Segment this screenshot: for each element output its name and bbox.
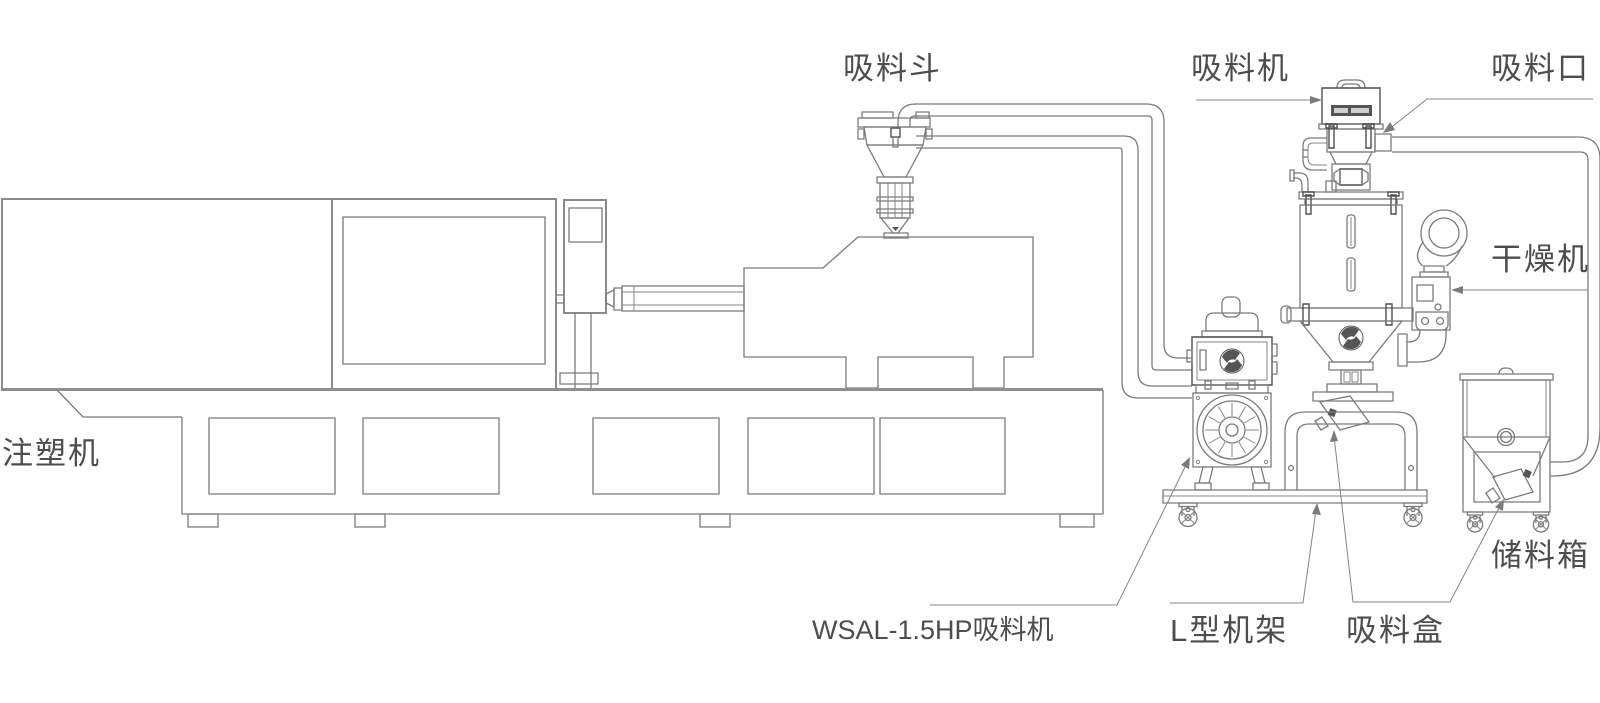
vacuum-pipes [898, 104, 1192, 398]
drying-hopper-drawing [1281, 80, 1413, 430]
suction-inlet-port [1375, 134, 1391, 151]
diagram-canvas: 吸料斗 吸料机 吸料口 干燥机 注塑机 WSAL-1.5HP吸料机 L型机架 吸… [0, 0, 1600, 703]
label-wsal-pump: WSAL-1.5HP吸料机 [812, 617, 1054, 644]
dryer-drawing [1398, 210, 1467, 366]
label-dryer: 干燥机 [1491, 244, 1590, 275]
label-suction-inlet: 吸料口 [1491, 53, 1590, 84]
label-injection-machine: 注塑机 [2, 438, 101, 469]
storage-box-drawing [1460, 368, 1553, 532]
label-l-frame: L型机架 [1170, 615, 1288, 646]
pump-unit-drawing [1187, 297, 1277, 490]
label-suction-hopper: 吸料斗 [843, 53, 942, 84]
material-pipe [1392, 137, 1600, 476]
label-vacuum-loader: 吸料机 [1191, 53, 1290, 84]
label-suction-box: 吸料盒 [1346, 615, 1445, 646]
system-line-drawing [0, 0, 1600, 703]
leader-lines [930, 96, 1593, 605]
suction-box-in-storage [1486, 469, 1533, 503]
suction-hopper-drawing [858, 112, 932, 233]
label-storage-box: 储料箱 [1491, 540, 1590, 571]
injection-machine-drawing [2, 199, 1103, 527]
